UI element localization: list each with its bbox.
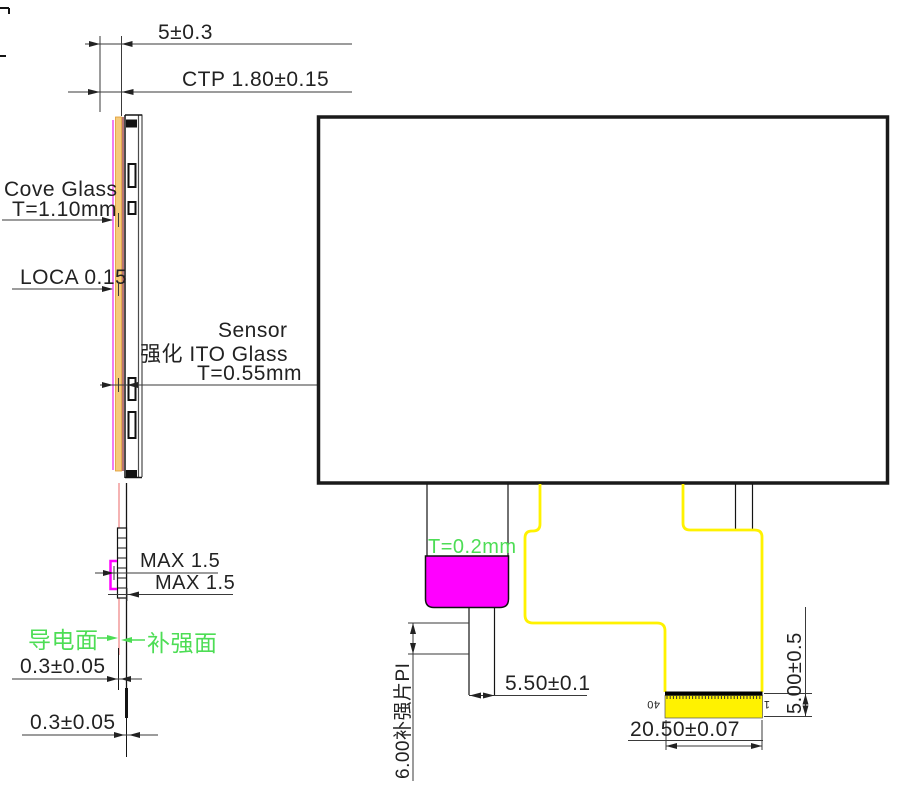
loca-label: LOCA 0.15 xyxy=(20,266,127,289)
fpc-connector: 40 1 xyxy=(647,692,770,719)
top-component xyxy=(126,120,137,128)
dim-connector-width: 20.50±0.07 xyxy=(628,718,763,750)
dim-tail-lower: 0.3±0.05 xyxy=(22,711,158,738)
sensor-thickness: T=0.55mm xyxy=(197,362,302,385)
dim-connector-height: 5.00±0.5 xyxy=(764,607,812,717)
fpc-left-tail: T=0.2mm xyxy=(426,484,517,695)
frame-artifact xyxy=(0,8,9,14)
fpc-outline-right xyxy=(683,484,762,692)
component xyxy=(129,412,136,438)
pin-first-label: 40 xyxy=(647,698,660,710)
panel-outline xyxy=(319,117,888,483)
stiffener-dim-label: 6.00补强片PI xyxy=(392,663,414,779)
ctp-stack xyxy=(113,115,142,479)
neck-width-label: 5.50±0.1 xyxy=(505,672,591,695)
connector-contact-bar xyxy=(665,692,763,696)
drawing-canvas: 5±0.3 CTP 1.80±0.15 C xyxy=(0,0,905,795)
side-view: 5±0.3 CTP 1.80±0.15 C xyxy=(0,8,357,757)
magenta-stiffener xyxy=(426,556,509,608)
component xyxy=(129,378,136,400)
connector-height-label: 5.00±0.5 xyxy=(784,632,806,714)
front-view: T=0.2mm 6.00补强片PI 5.50±0.1 xyxy=(319,117,888,781)
dim-stiffener: 6.00补强片PI xyxy=(392,623,469,781)
conductive-face-label: 导电面 xyxy=(28,627,99,653)
dim-ctp: CTP 1.80±0.15 xyxy=(68,68,352,95)
dim-tail-upper: 0.3±0.05 xyxy=(12,648,142,690)
connector-width-label: 20.50±0.07 xyxy=(630,718,740,741)
dim-cover-glass: Cove Glass T=1.10mm xyxy=(2,178,119,227)
dim-ctp-label: CTP 1.80±0.15 xyxy=(182,68,329,91)
pin-last-label: 1 xyxy=(763,698,770,710)
panel-drawing-svg: 5±0.3 CTP 1.80±0.15 C xyxy=(0,0,905,795)
face-labels: 导电面 补强面 xyxy=(28,627,218,656)
dim-loca: LOCA 0.15 xyxy=(12,266,127,296)
tail-dim-upper-label: 0.3±0.05 xyxy=(20,655,106,678)
dim-neck-width: 5.50±0.1 xyxy=(469,672,591,699)
bottom-component xyxy=(126,470,137,478)
component xyxy=(129,202,136,214)
max-upper-label: MAX 1.5 xyxy=(140,550,220,572)
component xyxy=(129,164,136,187)
tail-dim-lower-label: 0.3±0.05 xyxy=(30,711,116,734)
cover-glass-thickness: T=1.10mm xyxy=(12,198,117,221)
stiffener-thickness-label: T=0.2mm xyxy=(428,536,517,558)
sensor-name: Sensor xyxy=(218,319,288,342)
max-lower-label: MAX 1.5 xyxy=(155,572,235,594)
stiffener-face-label: 补强面 xyxy=(147,630,218,656)
dim-overall-label: 5±0.3 xyxy=(158,21,213,44)
fpc-outline-left xyxy=(525,484,665,692)
